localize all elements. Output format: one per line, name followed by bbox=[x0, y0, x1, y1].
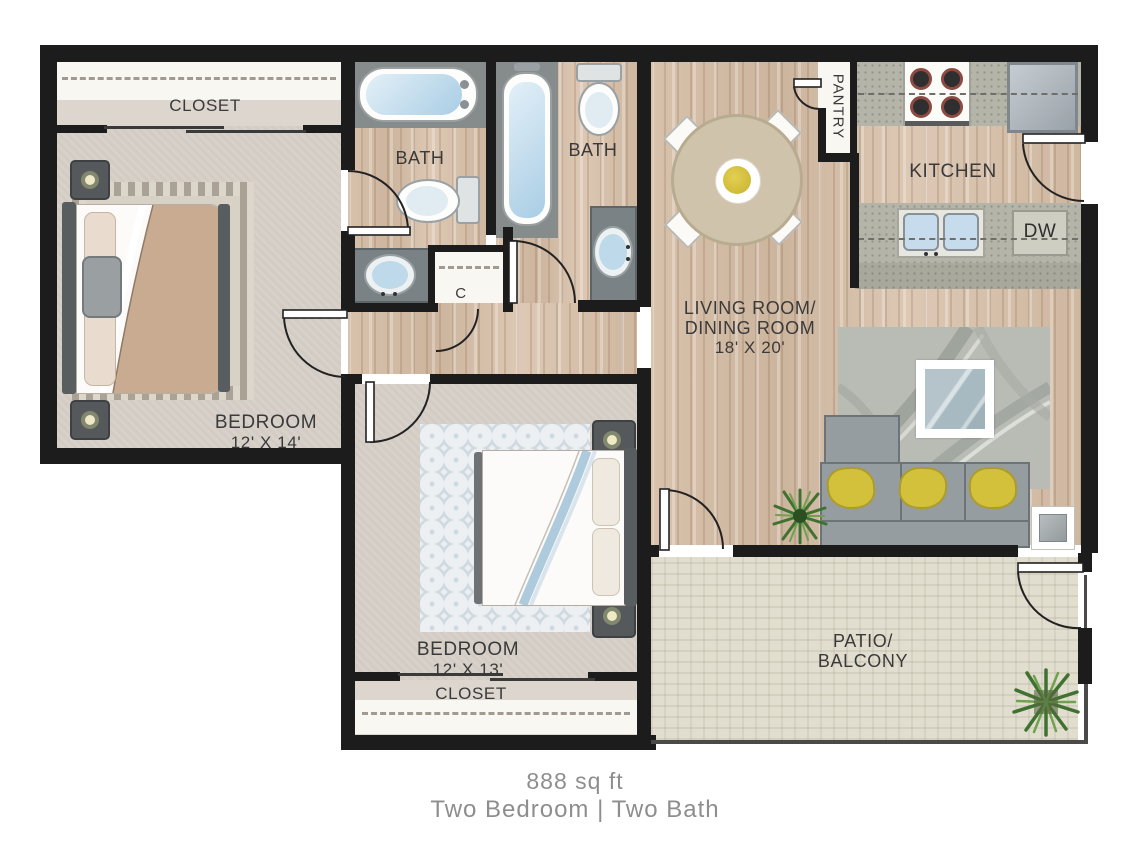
bath2-label: BATH bbox=[523, 140, 663, 161]
door-swings bbox=[0, 0, 1140, 849]
pantry-door-leaf bbox=[794, 79, 821, 87]
living-label-2: DINING ROOM bbox=[660, 318, 840, 339]
caption-sqft: 888 sq ft bbox=[375, 768, 775, 795]
bath1-door-leaf bbox=[348, 227, 410, 235]
bath2-door-leaf bbox=[509, 241, 517, 303]
bath1-label: BATH bbox=[340, 148, 500, 169]
bedroom1-label: BEDROOM bbox=[176, 412, 356, 434]
hall-closet-label: C bbox=[447, 285, 475, 302]
floorplan: CLOSET BATH BATH C PANTRY KITCHEN DW LIV… bbox=[0, 0, 1140, 849]
dishwasher-label: DW bbox=[1012, 221, 1068, 243]
pantry-label: PANTRY bbox=[830, 62, 847, 152]
bedroom2-label: BEDROOM bbox=[378, 639, 558, 661]
entry-door-leaf bbox=[1023, 134, 1085, 143]
living-label-1: LIVING ROOM/ bbox=[660, 298, 840, 319]
living-dims-label: 18' X 20' bbox=[660, 338, 840, 358]
patio-door-leaf bbox=[660, 489, 669, 550]
closet-top-label: CLOSET bbox=[120, 96, 290, 116]
bedroom2-dims-label: 12' X 13' bbox=[378, 660, 558, 680]
patio-label-1: PATIO/ bbox=[773, 631, 953, 652]
bedroom2-door-leaf bbox=[366, 382, 374, 442]
bedroom1-door-leaf bbox=[283, 310, 347, 318]
kitchen-label: KITCHEN bbox=[873, 161, 1033, 183]
bedroom1-dims-label: 12' X 14' bbox=[176, 433, 356, 453]
patio-gate-leaf bbox=[1018, 563, 1083, 572]
closet-bottom-label: CLOSET bbox=[386, 684, 556, 704]
caption-bed-bath: Two Bedroom | Two Bath bbox=[275, 796, 875, 824]
patio-label-2: BALCONY bbox=[773, 651, 953, 672]
